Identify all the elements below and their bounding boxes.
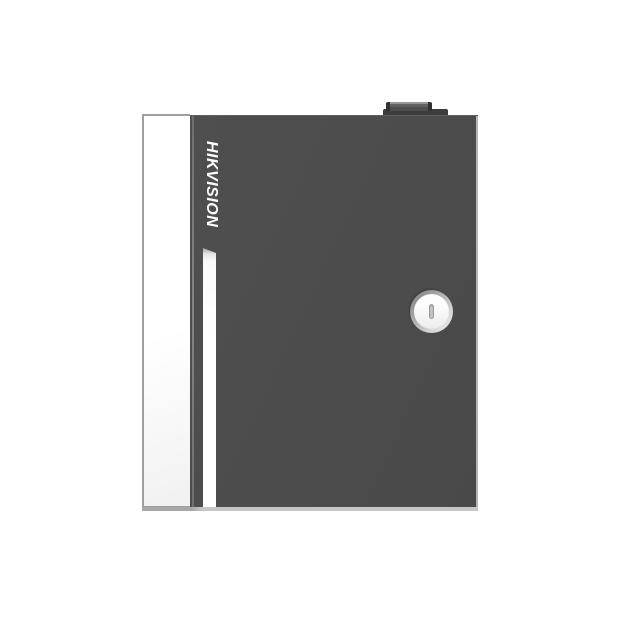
door-hinge-edge-highlight <box>192 116 194 507</box>
cam-lock <box>410 290 453 333</box>
accent-stripe <box>203 248 216 508</box>
top-hinge-block <box>386 102 432 111</box>
enclosure-bottom-edge <box>142 507 478 511</box>
enclosure-side-panel <box>142 114 190 508</box>
keyhole-icon <box>429 304 434 319</box>
product-photo: HIKVISION <box>0 0 620 620</box>
brand-logo: HIKVISION <box>204 141 218 241</box>
cam-lock-face <box>414 294 449 329</box>
door-right-edge <box>476 116 478 508</box>
